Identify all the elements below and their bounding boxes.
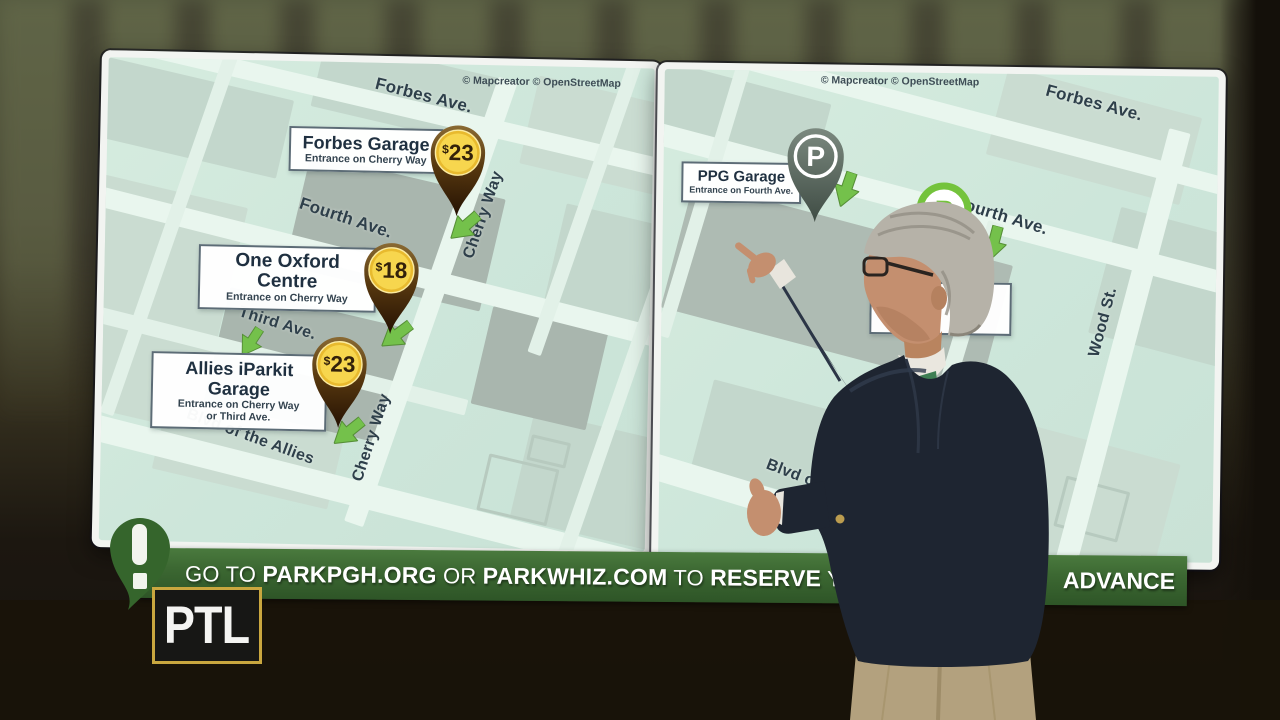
svg-text:P: P [806,141,825,172]
presenter-jacket [810,355,1049,667]
garage-name: One Oxford Centre [204,250,371,293]
map-attribution: © Mapcreator © OpenStreetMap [821,74,980,88]
presenter-hand [747,490,781,536]
garage-card-allies: Allies iParkit Garage Entrance on Cherry… [150,351,328,432]
broadcast-frame: © Mapcreator © OpenStreetMap Forbes Ave.… [0,0,1280,720]
price-pin-allies: $23 [308,332,370,431]
garage-card-oxford: One Oxford Centre Entrance on Cherry Way [198,244,377,313]
presenter [690,195,1090,720]
left-map-panel: © Mapcreator © OpenStreetMap Forbes Ave.… [92,50,662,559]
garage-name: Allies iParkit Garage [157,357,322,400]
garage-entrance: Entrance on Cherry Way [295,152,437,167]
jacket-button [836,515,845,524]
price-pin-forbes: $23 [427,121,489,220]
left-map: © Mapcreator © OpenStreetMap Forbes Ave.… [99,57,655,551]
price-pin-oxford: $18 [360,238,422,337]
ptl-logo: PTL [152,587,262,664]
garage-name: PPG Garage [687,167,795,186]
ptl-logo-text: PTL [164,595,249,656]
garage-entrance: Entrance on Cherry Way [204,290,370,305]
garage-card-forbes: Forbes Garage Entrance on Cherry Way [289,126,444,174]
